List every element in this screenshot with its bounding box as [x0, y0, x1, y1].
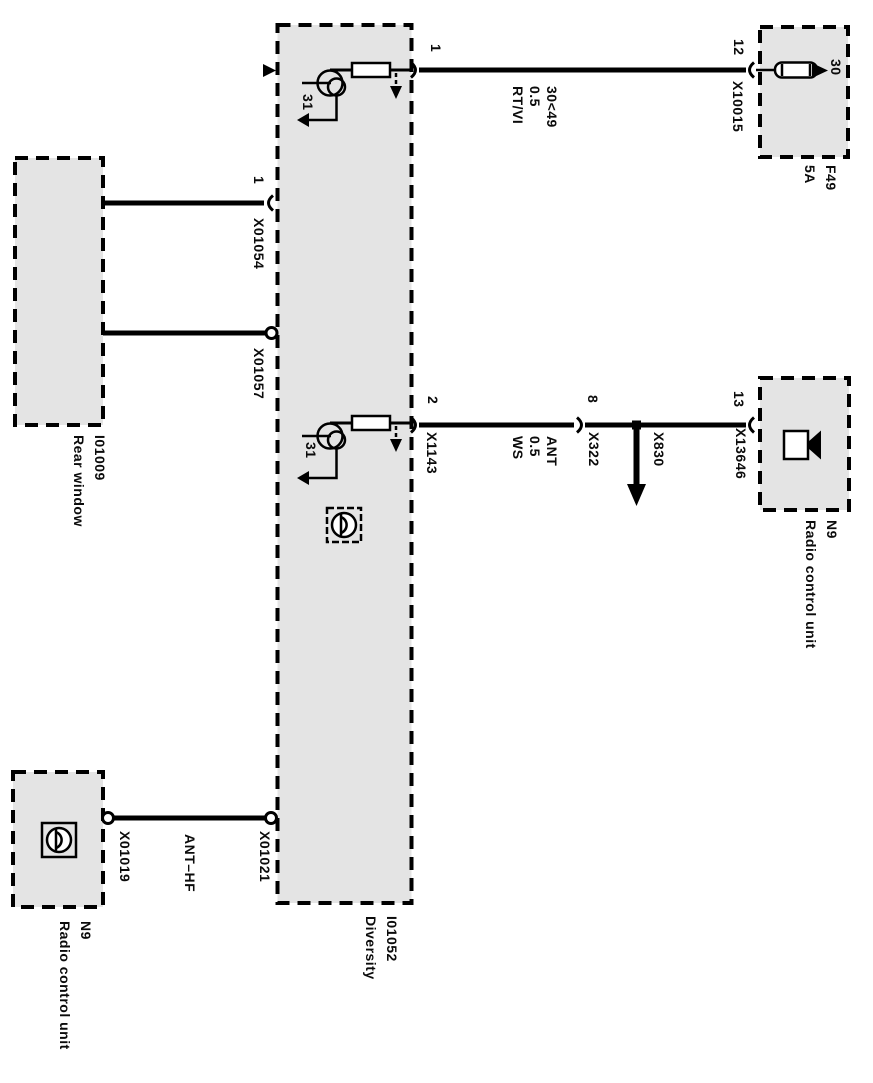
- connector-ring-icon-x01019: [103, 813, 114, 824]
- terminal-label-30: 30: [827, 59, 844, 76]
- component-label-radio-right: N9 Radio control unit: [800, 520, 842, 649]
- component-label-radio-bottom: N9 Radio control unit: [54, 921, 96, 1050]
- wire-label-antenna: ANT 0.5 WS: [509, 436, 560, 466]
- icon-circle: [47, 828, 71, 852]
- ground-label-31-top: 31: [299, 94, 316, 111]
- connector-ring-icon-x01057: [266, 328, 277, 339]
- resistor-icon: [352, 63, 390, 77]
- connector-socket-icon-x01054: [269, 196, 274, 211]
- pin-label-1-x01054: 1: [250, 176, 267, 184]
- connector-label-x10015: X10015: [729, 81, 746, 132]
- component-label-diversity: I01052 Diversity: [360, 916, 402, 980]
- diversity-box: [278, 25, 412, 903]
- pin-label-1-power: 1: [427, 44, 444, 52]
- connector-socket-icon-x13646: [750, 418, 755, 433]
- connector-label-x322: X322: [585, 432, 602, 467]
- wire-label-power: 30<49 0.5 RT/VI: [509, 86, 560, 128]
- connector-label-x1143: X1143: [423, 432, 440, 474]
- resistor-icon: [352, 416, 390, 430]
- pin-label-12: 12: [730, 39, 747, 56]
- input-arrow-icon: [263, 64, 276, 77]
- connector-label-x830: X830: [650, 432, 667, 467]
- connector-ring-icon-x01021: [266, 813, 277, 824]
- pin-label-8: 8: [584, 395, 601, 403]
- icon-circle: [332, 513, 356, 537]
- fuse-box: [760, 27, 848, 157]
- connector-label-x01054: X01054: [250, 218, 267, 269]
- ground-label-31-mid: 31: [302, 442, 319, 459]
- speaker-body: [784, 431, 808, 459]
- connector-socket-icon-x322: [577, 418, 582, 433]
- connector-socket-icon-x10015: [750, 63, 755, 78]
- x830-arrow-icon: [627, 421, 646, 507]
- connector-label-x13646: X13646: [732, 428, 749, 479]
- connector-label-x01021: X01021: [256, 831, 273, 882]
- arrow-head: [627, 484, 646, 506]
- wire-label-ant-hf: ANT–HF: [181, 834, 198, 892]
- pin-label-13: 13: [730, 391, 747, 408]
- component-label-rear-window: I01009 Rear window: [68, 435, 110, 527]
- wiring-diagram: [0, 0, 873, 1083]
- component-label-fuse: F49 5A: [799, 165, 841, 191]
- rear-window-box: [15, 158, 103, 425]
- connector-label-x01057: X01057: [250, 348, 267, 399]
- wiring-diagram-page: 1 30<49 0.5 RT/VI 12 X10015 30 F49 5A 1 …: [0, 0, 873, 1083]
- connector-label-x01019: X01019: [116, 831, 133, 882]
- pin-label-2: 2: [424, 396, 441, 404]
